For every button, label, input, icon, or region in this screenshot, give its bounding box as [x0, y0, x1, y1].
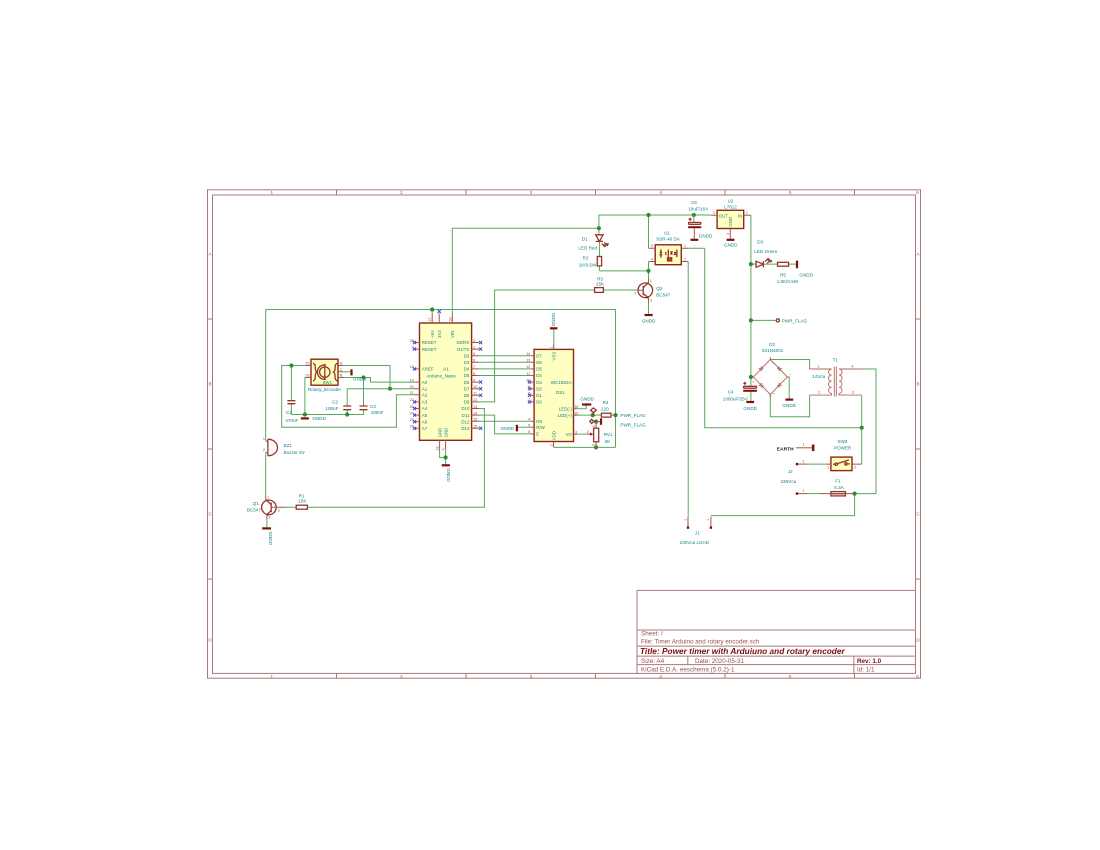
- svg-text:2: 2: [726, 233, 730, 235]
- svg-text:Date: 2020-05-31: Date: 2020-05-31: [695, 658, 745, 665]
- svg-text:230Vca LOAD: 230Vca LOAD: [680, 540, 710, 545]
- svg-text:File: Timer Arduino and rotary: File: Timer Arduino and rotary encoder.s…: [641, 638, 760, 645]
- svg-text:16: 16: [473, 425, 477, 429]
- svg-text:4X1N4001: 4X1N4001: [762, 348, 784, 353]
- svg-text:A: A: [340, 360, 343, 365]
- svg-text:C1: C1: [286, 410, 292, 415]
- svg-text:D10: D10: [461, 406, 470, 411]
- svg-text:D9: D9: [464, 400, 470, 405]
- svg-text:D8: D8: [464, 393, 470, 398]
- svg-text:11: 11: [473, 392, 477, 396]
- svg-text:S1: S1: [305, 360, 310, 365]
- svg-text:A7: A7: [422, 426, 428, 431]
- svg-text:D3: D3: [757, 239, 763, 244]
- svg-text:220: 220: [601, 406, 609, 411]
- svg-text:1: 1: [818, 364, 820, 368]
- svg-text:16: 16: [574, 405, 578, 409]
- svg-text:6: 6: [473, 359, 475, 363]
- svg-text:PWR_FLAG: PWR_FLAG: [782, 318, 808, 323]
- svg-text:4: 4: [851, 364, 853, 368]
- svg-text:GNDD: GNDD: [580, 396, 594, 401]
- svg-text:1: 1: [684, 244, 686, 248]
- svg-text:D3: D3: [536, 380, 542, 385]
- svg-text:R5: R5: [780, 272, 786, 277]
- svg-text:VSS: VSS: [552, 352, 557, 361]
- svg-text:1: 1: [802, 459, 804, 463]
- svg-text:Id: 1/1: Id: 1/1: [857, 667, 875, 674]
- svg-text:D6: D6: [464, 380, 470, 385]
- svg-text:2: 2: [400, 674, 403, 679]
- svg-text:T1: T1: [833, 358, 839, 363]
- svg-text:6: 6: [916, 190, 919, 195]
- svg-text:~: ~: [772, 360, 775, 365]
- svg-text:D4: D4: [464, 367, 470, 372]
- svg-text:11: 11: [526, 372, 530, 376]
- svg-text:D2: D2: [769, 342, 775, 347]
- svg-text:VDD: VDD: [551, 431, 556, 440]
- svg-text:Q1: Q1: [253, 501, 260, 506]
- svg-text:1: 1: [802, 489, 804, 493]
- svg-text:GNDD: GNDD: [312, 416, 326, 421]
- svg-text:S2: S2: [305, 372, 310, 377]
- svg-text:RS: RS: [536, 419, 542, 424]
- svg-text:1: 1: [550, 346, 554, 348]
- svg-text:1: 1: [592, 425, 596, 427]
- svg-text:3: 3: [530, 674, 533, 679]
- svg-text:A1: A1: [422, 386, 428, 391]
- svg-text:12: 12: [526, 365, 530, 369]
- svg-text:8: 8: [473, 372, 475, 376]
- svg-text:VO: VO: [565, 432, 572, 437]
- svg-text:14: 14: [473, 411, 477, 415]
- svg-text:D2: D2: [464, 353, 470, 358]
- svg-text:30: 30: [448, 317, 452, 321]
- svg-text:F1: F1: [835, 478, 841, 483]
- svg-text:6: 6: [916, 674, 919, 679]
- svg-text:GNDD: GNDD: [268, 532, 273, 546]
- svg-text:GNDD: GNDD: [642, 318, 656, 323]
- svg-text:GNDD: GNDD: [551, 312, 556, 326]
- svg-text:IN: IN: [738, 213, 742, 218]
- svg-text:LED(+): LED(+): [558, 413, 573, 418]
- svg-text:GNDD: GNDD: [353, 376, 367, 381]
- svg-text:13: 13: [473, 405, 477, 409]
- svg-text:100nF: 100nF: [325, 406, 338, 411]
- svg-text:OUT: OUT: [719, 213, 729, 218]
- svg-text:4: 4: [659, 190, 662, 195]
- svg-text:Sheet: /: Sheet: /: [641, 630, 663, 637]
- svg-text:Title: Power timer with Arduiu: Title: Power timer with Arduiuno and rot…: [640, 646, 845, 656]
- svg-text:5: 5: [473, 352, 475, 356]
- svg-text:4: 4: [528, 418, 530, 422]
- svg-text:L7812: L7812: [724, 204, 737, 209]
- svg-text:U1: U1: [664, 230, 670, 235]
- svg-text:D1: D1: [582, 236, 588, 241]
- svg-text:5: 5: [789, 190, 792, 195]
- svg-text:6.3A: 6.3A: [834, 485, 844, 490]
- svg-text:1: 1: [271, 190, 274, 195]
- svg-text:A6: A6: [422, 419, 428, 424]
- svg-text:DS1: DS1: [556, 390, 565, 395]
- svg-text:2: 2: [278, 508, 280, 512]
- svg-text:15: 15: [473, 418, 477, 422]
- svg-text:14Vca: 14Vca: [812, 374, 825, 379]
- svg-text:PWR_FLAG: PWR_FLAG: [620, 422, 646, 427]
- svg-text:2: 2: [473, 339, 475, 343]
- svg-text:B: B: [916, 382, 919, 387]
- svg-text:4: 4: [442, 448, 446, 450]
- svg-text:LED(-): LED(-): [559, 407, 572, 412]
- svg-text:2: 2: [587, 430, 589, 434]
- svg-text:C4: C4: [728, 390, 734, 395]
- svg-text:D0: D0: [536, 400, 542, 405]
- svg-text:J1: J1: [695, 530, 700, 535]
- svg-text:3: 3: [650, 299, 652, 303]
- svg-text:C: C: [340, 367, 343, 372]
- svg-text:15K: 15K: [596, 281, 605, 286]
- svg-text:R4: R4: [603, 400, 609, 405]
- svg-text:D7: D7: [464, 386, 470, 391]
- svg-text:+: +: [752, 379, 755, 384]
- svg-text:19: 19: [410, 378, 414, 382]
- svg-text:A1: A1: [443, 366, 449, 372]
- svg-text:SSR-40 DA: SSR-40 DA: [656, 237, 681, 242]
- svg-text:2: 2: [263, 448, 265, 452]
- svg-text:Q2: Q2: [656, 286, 663, 291]
- svg-text:D1/TX: D1/TX: [457, 347, 470, 352]
- svg-text:BC547: BC547: [656, 293, 670, 298]
- svg-text:1K/0.5W: 1K/0.5W: [579, 262, 597, 267]
- svg-text:2: 2: [400, 190, 403, 195]
- svg-text:LED Green: LED Green: [754, 249, 777, 254]
- svg-text:E: E: [536, 432, 539, 437]
- svg-text:4: 4: [659, 674, 662, 679]
- svg-text:4: 4: [651, 257, 653, 261]
- svg-text:Buzzer 5V: Buzzer 5V: [284, 450, 306, 455]
- svg-text:230Vca: 230Vca: [781, 479, 797, 484]
- svg-text:D5: D5: [536, 367, 542, 372]
- svg-text:R2: R2: [583, 256, 589, 261]
- svg-text:3: 3: [268, 516, 270, 520]
- svg-text:1: 1: [803, 443, 805, 447]
- svg-text:GNDD: GNDD: [501, 426, 515, 431]
- svg-text:J2: J2: [788, 469, 793, 474]
- svg-text:KiCad E.D.A. eeschema (5.0.2): KiCad E.D.A. eeschema (5.0.2)-1: [641, 667, 735, 674]
- svg-text:D12: D12: [461, 419, 470, 424]
- svg-text:U2: U2: [728, 199, 734, 204]
- svg-text:1: 1: [683, 519, 687, 521]
- svg-text:2: 2: [549, 444, 553, 446]
- svg-text:D11: D11: [462, 413, 470, 418]
- svg-text:SW3: SW3: [837, 439, 847, 444]
- svg-text:A5: A5: [422, 413, 428, 418]
- svg-text:1: 1: [263, 437, 265, 441]
- svg-text:D2: D2: [536, 386, 542, 391]
- svg-text:~: ~: [772, 391, 775, 396]
- svg-text:RV1: RV1: [604, 432, 613, 437]
- svg-text:GND: GND: [728, 217, 733, 227]
- svg-text:13: 13: [526, 359, 530, 363]
- svg-text:100nF: 100nF: [371, 410, 384, 415]
- svg-text:470nF: 470nF: [285, 418, 298, 423]
- svg-text:21: 21: [410, 391, 414, 395]
- svg-text:+5V: +5V: [430, 330, 435, 338]
- svg-text:D0/RX: D0/RX: [456, 340, 469, 345]
- svg-text:WC1602A: WC1602A: [551, 380, 573, 385]
- svg-text:B: B: [208, 382, 211, 387]
- svg-text:B: B: [340, 372, 343, 377]
- svg-text:PWR_FLAG: PWR_FLAG: [620, 413, 646, 418]
- svg-text:1: 1: [746, 211, 748, 215]
- svg-text:GND: GND: [437, 428, 442, 438]
- svg-text:2: 2: [684, 257, 686, 261]
- svg-text:GNDD: GNDD: [799, 272, 813, 277]
- svg-text:RESET: RESET: [422, 347, 437, 352]
- svg-text:D5: D5: [464, 373, 470, 378]
- svg-text:Rotary_Encoder: Rotary_Encoder: [308, 387, 342, 392]
- svg-text:9: 9: [473, 378, 475, 382]
- svg-text:1000uF/25V: 1000uF/25V: [723, 397, 749, 402]
- svg-text:27: 27: [428, 317, 432, 321]
- svg-text:1: 1: [473, 345, 475, 349]
- svg-text:1: 1: [271, 674, 274, 679]
- svg-text:AREF: AREF: [422, 367, 434, 372]
- svg-text:GNDD: GNDD: [699, 233, 713, 238]
- svg-text:BC547: BC547: [247, 508, 261, 513]
- svg-text:A2: A2: [422, 393, 428, 398]
- svg-text:EARTH: EARTH: [777, 447, 794, 453]
- svg-text:GNDD: GNDD: [446, 468, 451, 482]
- svg-text:1: 1: [827, 466, 829, 470]
- svg-text:6: 6: [528, 430, 530, 434]
- svg-text:1.5K/0.5W: 1.5K/0.5W: [777, 279, 799, 284]
- svg-text:3: 3: [592, 444, 596, 446]
- svg-text:3: 3: [713, 211, 715, 215]
- svg-text:D6: D6: [536, 360, 542, 365]
- svg-text:1: 1: [706, 519, 710, 521]
- svg-text:5: 5: [789, 674, 792, 679]
- svg-text:7: 7: [473, 365, 475, 369]
- svg-text:RESET: RESET: [422, 340, 437, 345]
- svg-text:5K: 5K: [605, 439, 612, 444]
- svg-text:2: 2: [818, 391, 820, 395]
- svg-text:D7: D7: [536, 353, 542, 358]
- svg-text:GNDD: GNDD: [724, 243, 738, 248]
- svg-text:SW1: SW1: [323, 380, 333, 385]
- svg-text:3: 3: [852, 391, 854, 395]
- svg-text:5: 5: [528, 424, 530, 428]
- svg-text:GNDD: GNDD: [782, 403, 796, 408]
- svg-text:2: 2: [634, 291, 636, 295]
- svg-text:12: 12: [473, 398, 477, 402]
- svg-text:1: 1: [267, 496, 269, 500]
- svg-text:1: 1: [650, 279, 652, 283]
- svg-text:LED Red: LED Red: [578, 246, 597, 251]
- svg-text:GND: GND: [443, 428, 448, 438]
- svg-text:3: 3: [651, 244, 653, 248]
- svg-text:C3: C3: [370, 404, 376, 409]
- svg-text:3: 3: [530, 190, 533, 195]
- svg-text:A4: A4: [422, 406, 428, 411]
- svg-text:D4: D4: [536, 373, 542, 378]
- svg-text:POWER: POWER: [834, 446, 852, 451]
- svg-text:3: 3: [575, 430, 577, 434]
- svg-text:3V3: 3V3: [437, 330, 442, 338]
- svg-text:VIN: VIN: [450, 331, 455, 338]
- svg-text:2: 2: [854, 466, 856, 470]
- svg-text:C6: C6: [691, 200, 697, 205]
- svg-text:10uF/16V: 10uF/16V: [688, 206, 709, 211]
- svg-text:10: 10: [473, 385, 477, 389]
- svg-text:Arduino_Nano: Arduino_Nano: [426, 374, 456, 379]
- svg-text:15K: 15K: [298, 499, 307, 504]
- svg-text:A0: A0: [422, 380, 428, 385]
- svg-text:D1: D1: [536, 393, 542, 398]
- svg-text:D3: D3: [464, 360, 470, 365]
- svg-text:C2: C2: [332, 400, 338, 405]
- svg-text:R/W: R/W: [536, 425, 545, 430]
- svg-text:A3: A3: [422, 400, 428, 405]
- svg-text:15: 15: [574, 411, 578, 415]
- svg-text:20: 20: [410, 385, 414, 389]
- svg-text:14: 14: [526, 352, 530, 356]
- svg-text:GNDD: GNDD: [743, 406, 757, 411]
- svg-text:29: 29: [436, 446, 440, 450]
- svg-text:BZ1: BZ1: [284, 443, 293, 448]
- svg-text:D13: D13: [461, 426, 470, 431]
- svg-text:Size: A4: Size: A4: [641, 658, 665, 665]
- svg-text:Rev: 1.0: Rev: 1.0: [857, 658, 882, 665]
